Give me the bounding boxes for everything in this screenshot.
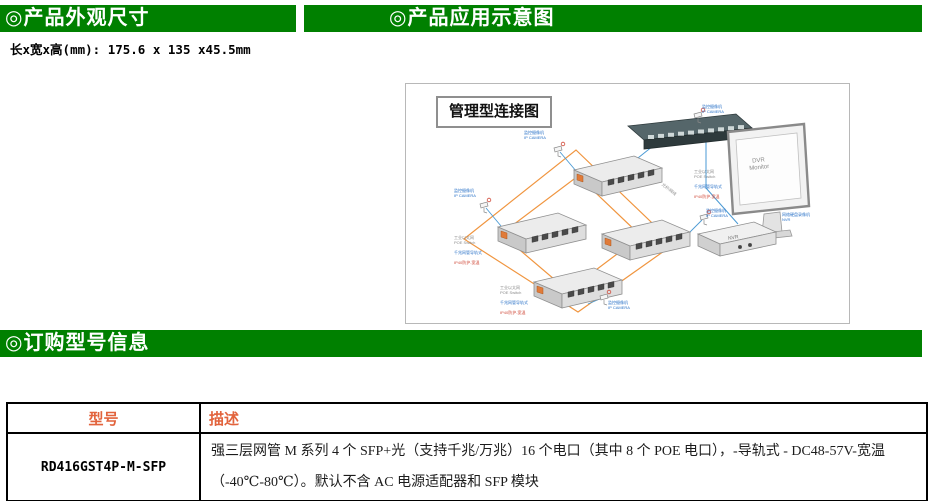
- switch-spec-label: 工业以太网 POE Switch 千兆网管导轨式 IP40防护-宽温: [500, 280, 536, 320]
- rack-switch-port: [708, 128, 714, 132]
- switch-spec-blue: 千兆网管导轨式: [454, 250, 490, 255]
- camera-icon: [554, 146, 562, 152]
- switch-rj45-port: [676, 233, 682, 240]
- rack-switch-port: [688, 131, 694, 135]
- rack-switch-port: [718, 127, 724, 131]
- rack-switch-port: [738, 125, 744, 129]
- ip-camera-label: 监控摄像机 IP CAMERA: [454, 188, 476, 198]
- rack-switch-port: [698, 130, 704, 134]
- switch-spec-red: IP40防护-宽温: [454, 260, 490, 265]
- switch-rj45-port: [638, 172, 644, 179]
- switch-rj45-port: [578, 288, 584, 295]
- nvr-port: [738, 245, 741, 248]
- switch-spec-gray: 工业以太网 POE Switch: [694, 169, 730, 179]
- rack-switch-port: [658, 134, 664, 138]
- switch-spec-gray: 工业以太网 POE Switch: [454, 235, 490, 245]
- switch-spec-red: IP40防护-宽温: [694, 194, 730, 199]
- switch-spec-red: IP40防护-宽温: [500, 310, 536, 315]
- camera-alert-dot: [561, 142, 565, 146]
- column-header-model: 型号: [7, 403, 200, 433]
- nvr-port: [748, 243, 751, 246]
- switch-rj45-port: [628, 174, 634, 181]
- switch-rj45-port: [552, 231, 558, 238]
- rack-switch-port: [668, 133, 674, 137]
- product-dimensions-text: 长x宽x高(mm): 175.6 x 135 x45.5mm: [10, 39, 251, 58]
- section-header-application: ◎产品应用示意图: [304, 5, 922, 32]
- nvr-side-label: 网络硬盘录像机 NVR: [782, 212, 810, 222]
- rack-switch-port: [728, 126, 734, 130]
- ordering-table: 型号 描述 RD416GST4P-M-SFP 强三层网管 M 系列 4 个 SF…: [6, 402, 928, 501]
- camera-mount: [604, 300, 607, 305]
- model-description-cell: 强三层网管 M 系列 4 个 SFP+光（支持千兆/万兆）16 个电口（其中 8…: [200, 433, 927, 501]
- application-diagram: 管理型连接图 监控摄像机 IP CAMERA 监控摄像机 IP CAMERA 监…: [405, 83, 850, 324]
- camera-mount: [704, 220, 707, 225]
- switch-rj45-port: [598, 284, 604, 291]
- column-header-description: 描述: [200, 403, 927, 433]
- section-header-ordering: ◎订购型号信息: [0, 330, 922, 357]
- section-title: ◎订购型号信息: [5, 332, 149, 354]
- switch-rj45-port: [568, 291, 574, 298]
- switch-rj45-port: [656, 238, 662, 245]
- ip-camera-label: 监控摄像机 IP CAMERA: [524, 130, 546, 140]
- switch-spec-gray: 工业以太网 POE Switch: [500, 285, 536, 295]
- switch-rj45-port: [608, 281, 614, 288]
- table-row: RD416GST4P-M-SFP 强三层网管 M 系列 4 个 SFP+光（支持…: [7, 433, 927, 501]
- switch-spec-blue: 千兆网管导轨式: [500, 300, 536, 305]
- camera-icon: [694, 112, 702, 118]
- switch-rj45-port: [618, 176, 624, 183]
- switch-spec-label: 工业以太网 POE Switch 千兆网管导轨式 IP40防护-宽温: [694, 164, 730, 204]
- switch-rj45-port: [608, 179, 614, 186]
- model-number-cell: RD416GST4P-M-SFP: [7, 433, 200, 501]
- switch-rj45-port: [666, 236, 672, 243]
- camera-alert-dot: [487, 198, 491, 202]
- switch-rj45-port: [532, 236, 538, 243]
- switch-rj45-port: [542, 233, 548, 240]
- rack-switch-port: [678, 132, 684, 136]
- ip-camera-label: 监控摄像机 IP CAMERA: [706, 208, 728, 218]
- switch-rj45-port: [562, 229, 568, 236]
- datasheet-page: ◎产品外观尺寸 ◎产品应用示意图 长x宽x高(mm): 175.6 x 135 …: [0, 0, 942, 501]
- switch-spec-blue: 千兆网管导轨式: [694, 184, 730, 189]
- section-title: ◎产品应用示意图: [389, 7, 554, 29]
- table-header-row: 型号 描述: [7, 403, 927, 433]
- ip-camera-label: 监控摄像机 IP CAMERA: [702, 104, 724, 114]
- switch-rj45-port: [646, 240, 652, 247]
- switch-rj45-port: [572, 226, 578, 233]
- ip-camera-label: 监控摄像机 IP CAMERA: [608, 300, 630, 310]
- diagram-title-box: 管理型连接图: [436, 96, 552, 128]
- switch-rj45-port: [588, 286, 594, 293]
- switch-rj45-port: [648, 169, 654, 176]
- rack-switch-port: [648, 135, 654, 139]
- section-header-appearance: ◎产品外观尺寸: [0, 5, 296, 32]
- switch-rj45-port: [636, 243, 642, 250]
- switch-spec-label: 工业以太网 POE Switch 千兆网管导轨式 IP40防护-宽温: [454, 230, 490, 270]
- camera-icon: [480, 202, 488, 208]
- section-title: ◎产品外观尺寸: [5, 7, 149, 29]
